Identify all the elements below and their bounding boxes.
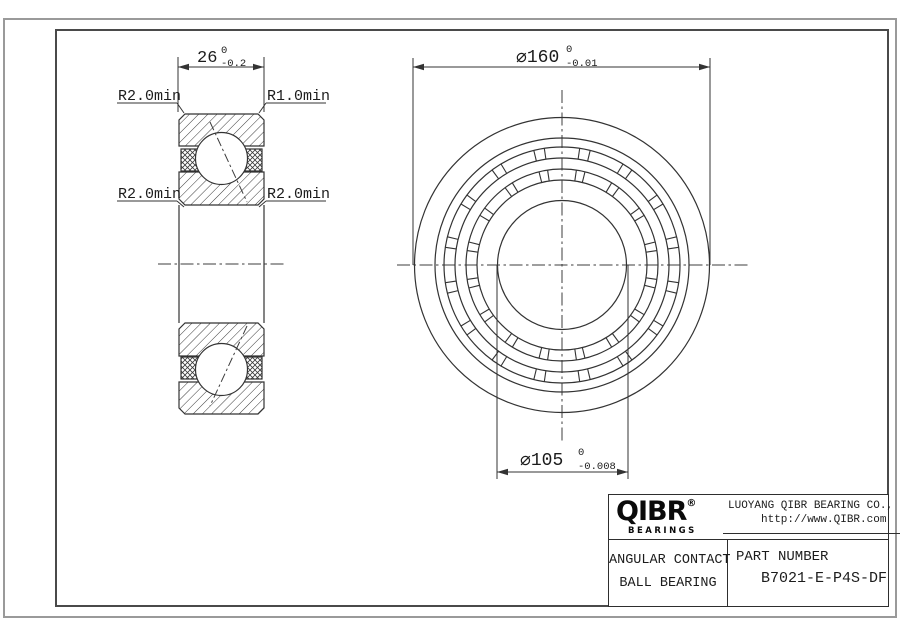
cage-bridge-line — [512, 338, 518, 348]
cage-bridge-line — [666, 237, 677, 240]
leader-tail — [259, 103, 266, 113]
cage-bridge-line — [467, 278, 478, 280]
cage-bridge-line — [539, 348, 542, 359]
part-number-label: PART NUMBER — [736, 547, 888, 567]
cage-bridge-line — [512, 183, 518, 193]
bore-diameter-tol-upper: 0 — [578, 447, 584, 459]
cage-bridge-line — [646, 251, 657, 253]
cage-bridge-line — [648, 195, 657, 202]
cage-bridge-line — [445, 281, 456, 283]
product-type-cell: ANGULAR CONTACT BALL BEARING — [609, 540, 728, 607]
cage-bridge-line — [578, 371, 580, 382]
cage-bridge-line — [645, 285, 656, 288]
cage-bridge-line — [635, 309, 645, 315]
cage-bridge-line — [635, 215, 645, 221]
cage-bridge-line — [480, 309, 490, 315]
cage-bridge-line — [480, 215, 490, 221]
arrowhead-left — [497, 469, 508, 475]
cage-bridge-line — [485, 208, 494, 215]
cage-bridge-line — [588, 150, 591, 161]
arrowhead-right — [617, 469, 628, 475]
drawing-page: 26 0 -0.2 R2.0min R1.0min R2.0min R2.0mi… — [0, 0, 900, 636]
cage-bridge-line — [501, 357, 507, 366]
company-name: LUOYANG QIBR BEARING CO., LTD — [728, 499, 900, 513]
cage-bridge-line — [645, 242, 656, 245]
arrowhead-right — [253, 64, 264, 70]
cage-bridge-line — [582, 172, 585, 183]
section-view — [158, 114, 287, 414]
ball-bottom — [196, 344, 248, 396]
cage-bridge-line — [534, 369, 537, 380]
ball-top — [196, 133, 248, 185]
cage-bridge-line — [505, 334, 512, 343]
cage-bridge-line — [485, 315, 494, 322]
cage-bridge-line — [548, 170, 550, 181]
cage-bridge-line — [447, 237, 458, 240]
cage-bridge-line — [648, 328, 657, 335]
title-block-header-row: QIBR® BEARINGS LUOYANG QIBR BEARING CO.,… — [609, 495, 888, 540]
cage-bridge-line — [467, 328, 476, 335]
title-block: QIBR® BEARINGS LUOYANG QIBR BEARING CO.,… — [608, 494, 889, 607]
cage-bridge-line — [467, 195, 476, 202]
title-block-detail-row: ANGULAR CONTACT BALL BEARING PART NUMBER… — [609, 540, 888, 607]
cage-bridge-line — [582, 348, 585, 359]
outer-diameter-tol-lower: -0.01 — [566, 58, 598, 70]
product-type-line2: BALL BEARING — [609, 572, 727, 595]
cage-bridge-line — [575, 170, 577, 181]
website-underline — [723, 533, 900, 534]
leader-label-mid-right: R2.0min — [267, 186, 330, 203]
leader-label-top-right: R1.0min — [267, 88, 330, 105]
outer-diameter-value: ⌀160 — [516, 48, 559, 68]
cage-bridge-line — [646, 278, 657, 280]
width-dimension: 26 0 -0.2 — [178, 45, 264, 112]
cage-bridge-line — [668, 247, 679, 249]
cage-bridge-line — [461, 320, 470, 326]
bore-diameter-value: ⌀105 — [520, 451, 563, 471]
cage-bridge-line — [501, 164, 507, 173]
cage-bridge-line — [492, 351, 499, 360]
part-number-cell: PART NUMBER B7021-E-P4S-DF — [728, 540, 888, 607]
cage-bridge-line — [578, 148, 580, 159]
cage-bridge-line — [606, 338, 612, 348]
cage-bridge-line — [625, 170, 632, 179]
brand-logo-text: QIBR® — [616, 496, 696, 527]
cage-bridge-line — [654, 204, 663, 210]
cage-bridge-line — [539, 172, 542, 183]
width-tolerance-lower: -0.2 — [221, 58, 246, 70]
cage-bridge-line — [617, 357, 623, 366]
company-website: http://www.QIBR.com — [728, 513, 900, 527]
cage-bridge-line — [654, 320, 663, 326]
company-info-cell: LUOYANG QIBR BEARING CO., LTD http://www… — [728, 495, 900, 539]
cage-bridge-line — [445, 247, 456, 249]
cage-bridge-line — [666, 291, 677, 294]
cage-bridge-line — [505, 188, 512, 197]
cage-bridge-line — [575, 349, 577, 360]
bore-diameter-tol-lower: -0.008 — [578, 461, 616, 473]
front-view — [397, 90, 748, 442]
brand-sub-text: BEARINGS — [628, 526, 697, 536]
cage-bridge-line — [612, 334, 619, 343]
cage-bridge-line — [544, 148, 546, 159]
cage-bridge-line — [625, 351, 632, 360]
cage-bridge-line — [668, 281, 679, 283]
cage-bridge-line — [544, 371, 546, 382]
brand-logo: QIBR® BEARINGS — [609, 495, 728, 539]
arrowhead-left — [178, 64, 189, 70]
part-number-value: B7021-E-P4S-DF — [761, 567, 888, 591]
cage-bridge-line — [469, 285, 480, 288]
cage-bridge-line — [492, 170, 499, 179]
arrowhead-left — [413, 64, 424, 70]
cage-bridge-line — [467, 251, 478, 253]
leader-label-mid-left: R2.0min — [118, 186, 181, 203]
brand-name: QIBR — [616, 496, 686, 527]
cage-bridge-line — [447, 291, 458, 294]
leader-label-top-left: R2.0min — [118, 88, 181, 105]
outer-diameter-tol-upper: 0 — [566, 44, 572, 56]
cage-bridge-line — [631, 315, 640, 322]
product-type-line1: ANGULAR CONTACT — [609, 549, 727, 572]
arrowhead-right — [699, 64, 710, 70]
cage-bridge-line — [534, 150, 537, 161]
cage-bridge-line — [461, 204, 470, 210]
cage-bridge-line — [631, 208, 640, 215]
cage-bridge-line — [617, 164, 623, 173]
cage-bridge-line — [588, 369, 591, 380]
cage-bridge-line — [612, 188, 619, 197]
cage-bridge-line — [548, 349, 550, 360]
width-tolerance-upper: 0 — [221, 45, 227, 57]
cage-bridge-line — [606, 183, 612, 193]
registered-trademark-icon: ® — [686, 498, 696, 509]
cage-bridge-line — [469, 242, 480, 245]
width-dimension-value: 26 — [197, 49, 217, 68]
